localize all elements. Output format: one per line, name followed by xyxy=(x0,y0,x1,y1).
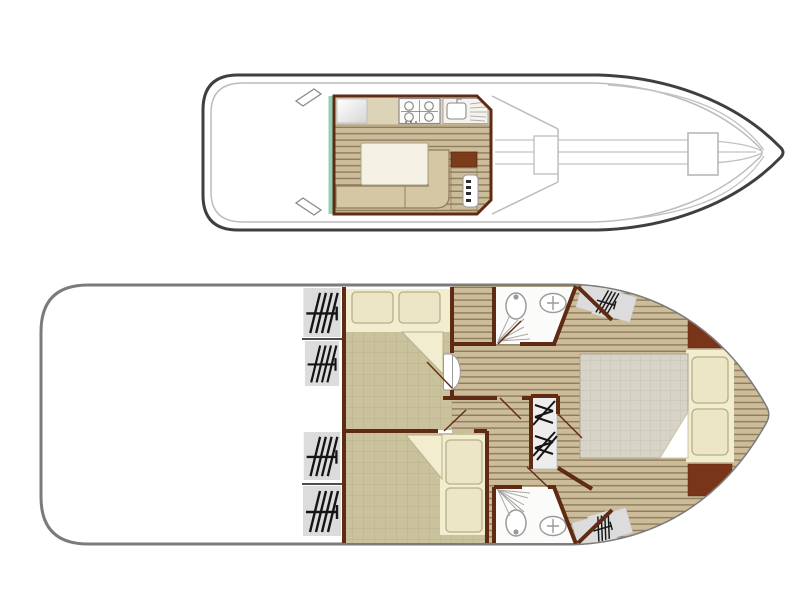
cabinet-icon xyxy=(451,152,477,167)
window-blind-icon xyxy=(303,288,340,337)
deck-hatch-icon xyxy=(688,133,718,175)
companionway-box xyxy=(534,136,558,174)
window-blind-icon xyxy=(303,486,341,536)
pillow-icon xyxy=(446,440,482,484)
stove-icon xyxy=(399,99,440,124)
headboard-unit xyxy=(688,316,732,348)
pillow-icon xyxy=(692,409,728,455)
pillow-icon xyxy=(692,357,728,403)
washbasin-icon xyxy=(540,294,566,313)
saloon-galley xyxy=(334,96,492,215)
upper-deck-view xyxy=(203,75,783,230)
pillow-icon xyxy=(352,292,393,323)
fridge-icon xyxy=(337,99,367,123)
toilet-icon xyxy=(506,293,526,319)
window-blind-icon xyxy=(305,341,339,386)
stairs-icon xyxy=(531,397,557,469)
sliding-door-teal xyxy=(329,96,334,214)
boat-plan-svg xyxy=(0,0,800,600)
lower-deck-view xyxy=(41,280,772,550)
pillow-icon xyxy=(399,292,440,323)
headboard-unit xyxy=(688,464,732,496)
helm-console-icon xyxy=(463,175,478,207)
washbasin-icon xyxy=(540,517,566,536)
boat-plan-canvas xyxy=(0,0,800,600)
window-blind-icon xyxy=(304,432,340,480)
pillow-icon xyxy=(446,488,482,532)
lower-deck-interior xyxy=(302,280,772,550)
table-icon xyxy=(361,143,428,185)
